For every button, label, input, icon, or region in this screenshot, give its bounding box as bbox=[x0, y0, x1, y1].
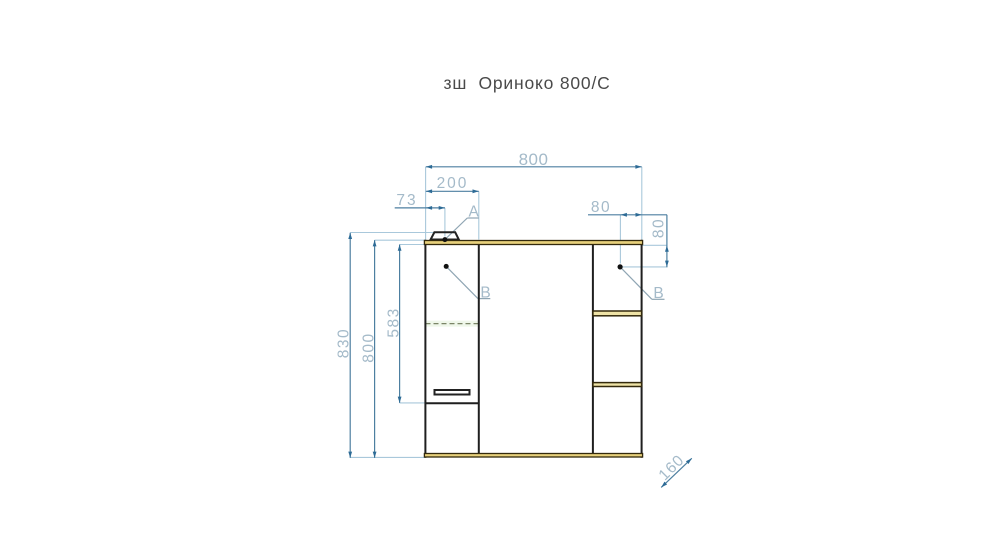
svg-text:80: 80 bbox=[591, 199, 611, 216]
svg-text:800: 800 bbox=[361, 332, 378, 362]
svg-text:73: 73 bbox=[396, 192, 417, 209]
svg-text:зш Ориноко 800/С: зш Ориноко 800/С bbox=[444, 73, 611, 93]
svg-text:830: 830 bbox=[336, 328, 353, 358]
svg-text:800: 800 bbox=[519, 150, 549, 169]
svg-text:200: 200 bbox=[437, 175, 469, 192]
svg-text:583: 583 bbox=[386, 307, 403, 337]
svg-text:80: 80 bbox=[651, 218, 668, 238]
